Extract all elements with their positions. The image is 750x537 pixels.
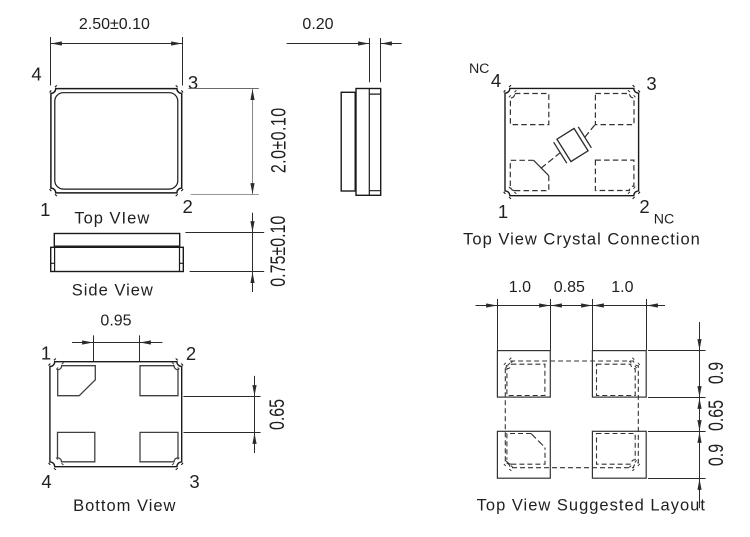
svg-text:NC: NC xyxy=(654,212,675,228)
svg-text:2: 2 xyxy=(182,196,192,217)
svg-text:0.65: 0.65 xyxy=(266,399,290,430)
svg-text:3: 3 xyxy=(188,72,198,93)
svg-text:Top View Suggested Layout: Top View Suggested Layout xyxy=(477,497,706,515)
svg-text:2.50±0.10: 2.50±0.10 xyxy=(79,16,150,33)
svg-text:0.65: 0.65 xyxy=(705,400,729,431)
svg-text:4: 4 xyxy=(31,64,41,85)
svg-text:Top VIew: Top VIew xyxy=(74,210,150,228)
svg-text:3: 3 xyxy=(189,471,199,492)
svg-text:1.0: 1.0 xyxy=(509,279,531,296)
svg-text:Side View: Side View xyxy=(72,282,154,300)
svg-text:1.0: 1.0 xyxy=(611,279,633,296)
svg-text:4: 4 xyxy=(41,471,51,492)
svg-text:2: 2 xyxy=(639,196,649,217)
svg-text:0.85: 0.85 xyxy=(554,279,585,296)
svg-text:1: 1 xyxy=(40,199,50,220)
svg-text:0.95: 0.95 xyxy=(100,313,131,330)
svg-text:0.9: 0.9 xyxy=(705,362,729,384)
svg-text:0.20: 0.20 xyxy=(302,16,333,33)
svg-text:1: 1 xyxy=(498,201,508,222)
svg-text:NC: NC xyxy=(469,61,490,77)
svg-text:Bottom View: Bottom View xyxy=(73,497,176,515)
svg-text:0.9: 0.9 xyxy=(705,444,729,466)
svg-text:0.75±0.10: 0.75±0.10 xyxy=(267,216,291,287)
svg-text:Top View Crystal Connection: Top View Crystal Connection xyxy=(463,230,701,248)
svg-text:3: 3 xyxy=(646,73,656,94)
svg-text:2.0±0.10: 2.0±0.10 xyxy=(267,107,291,173)
svg-text:1: 1 xyxy=(41,343,51,364)
svg-text:4: 4 xyxy=(491,70,501,91)
svg-text:2: 2 xyxy=(186,343,196,364)
